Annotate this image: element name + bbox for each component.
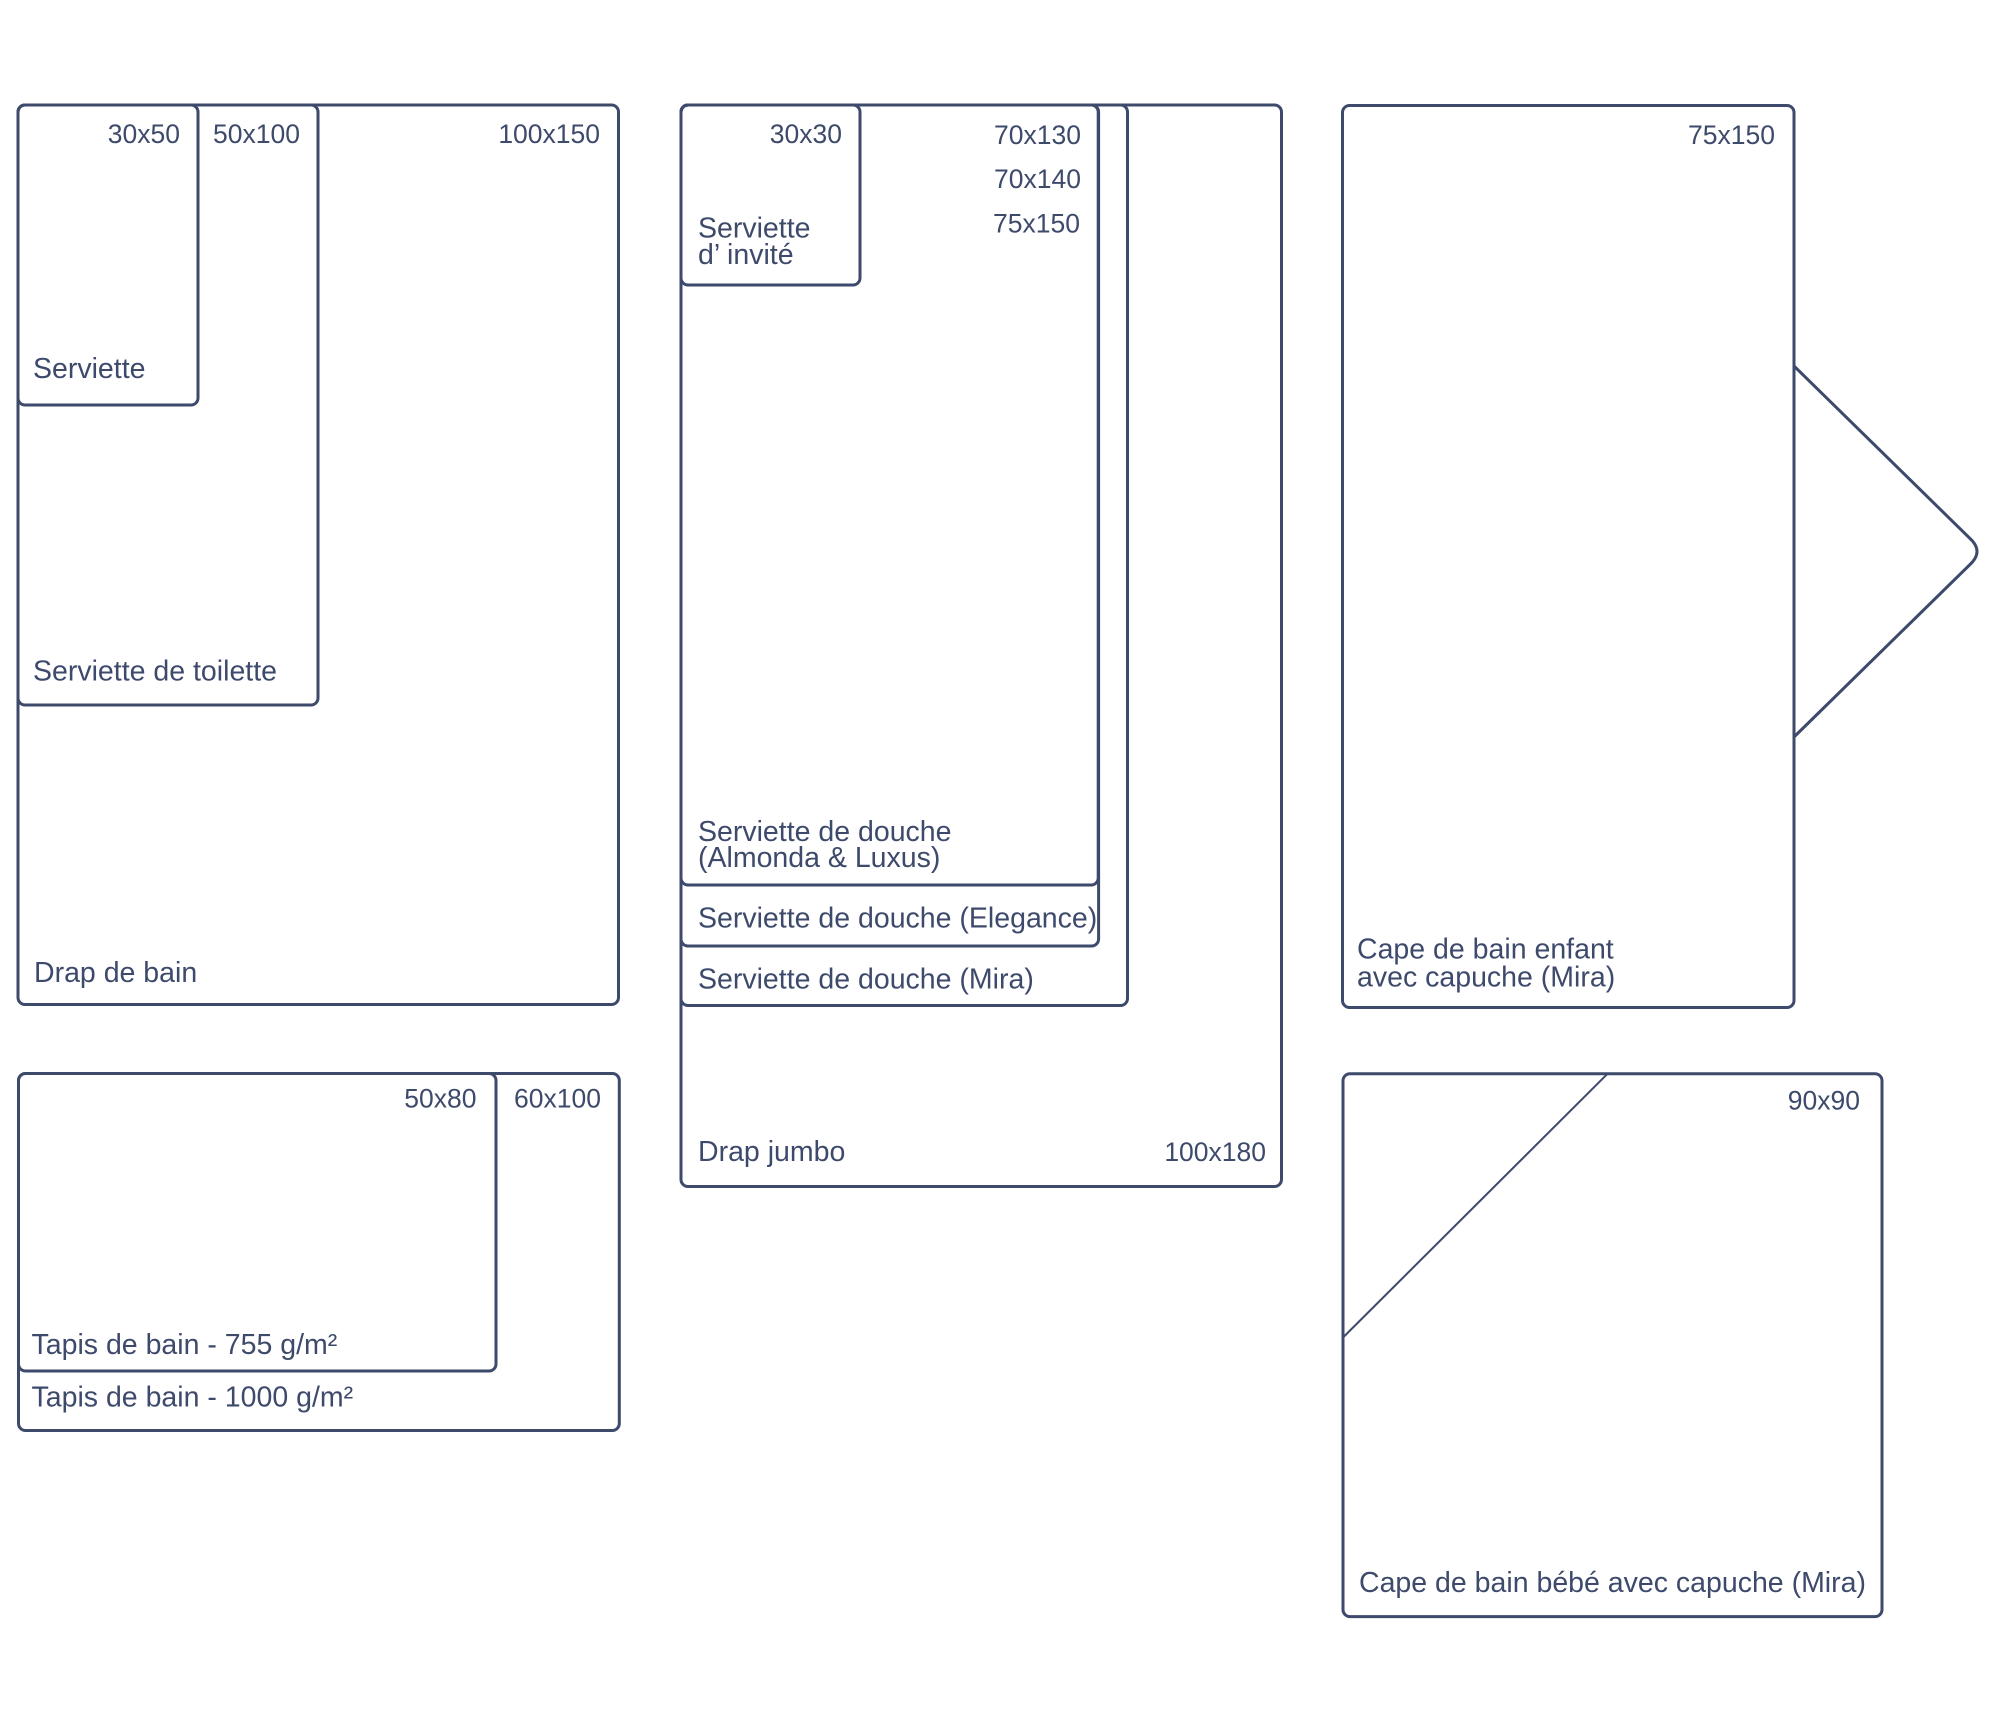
svg-text:Serviette: Serviette: [33, 353, 145, 385]
svg-text:70x140: 70x140: [994, 164, 1081, 194]
svg-text:Serviette de toilette: Serviette de toilette: [33, 656, 277, 688]
svg-text:Drap de bain: Drap de bain: [34, 957, 197, 989]
svg-text:100x180: 100x180: [1164, 1137, 1266, 1167]
svg-text:Tapis de bain - 755 g/m²: Tapis de bain - 755 g/m²: [32, 1329, 338, 1361]
svg-text:75x150: 75x150: [1688, 120, 1775, 150]
svg-text:75x150: 75x150: [993, 209, 1080, 239]
svg-text:(Almonda & Luxus): (Almonda & Luxus): [698, 842, 940, 874]
svg-text:d’ invité: d’ invité: [698, 239, 794, 271]
svg-text:70x130: 70x130: [994, 120, 1081, 150]
svg-text:50x80: 50x80: [404, 1084, 476, 1114]
svg-text:Cape de bain bébé avec capuche: Cape de bain bébé avec capuche (Mira): [1359, 1567, 1866, 1599]
svg-text:50x100: 50x100: [213, 119, 300, 149]
svg-text:Drap jumbo: Drap jumbo: [698, 1136, 845, 1168]
svg-text:Serviette de douche (Elegance): Serviette de douche (Elegance): [698, 903, 1097, 935]
svg-text:90x90: 90x90: [1788, 1086, 1860, 1116]
svg-text:60x100: 60x100: [514, 1084, 601, 1114]
svg-text:avec capuche (Mira): avec capuche (Mira): [1357, 962, 1615, 994]
svg-text:30x30: 30x30: [770, 119, 842, 149]
svg-text:Tapis de bain - 1000 g/m²: Tapis de bain - 1000 g/m²: [32, 1382, 354, 1414]
svg-text:30x50: 30x50: [108, 119, 180, 149]
svg-text:Serviette de douche (Mira): Serviette de douche (Mira): [698, 964, 1034, 996]
svg-text:100x150: 100x150: [498, 119, 600, 149]
